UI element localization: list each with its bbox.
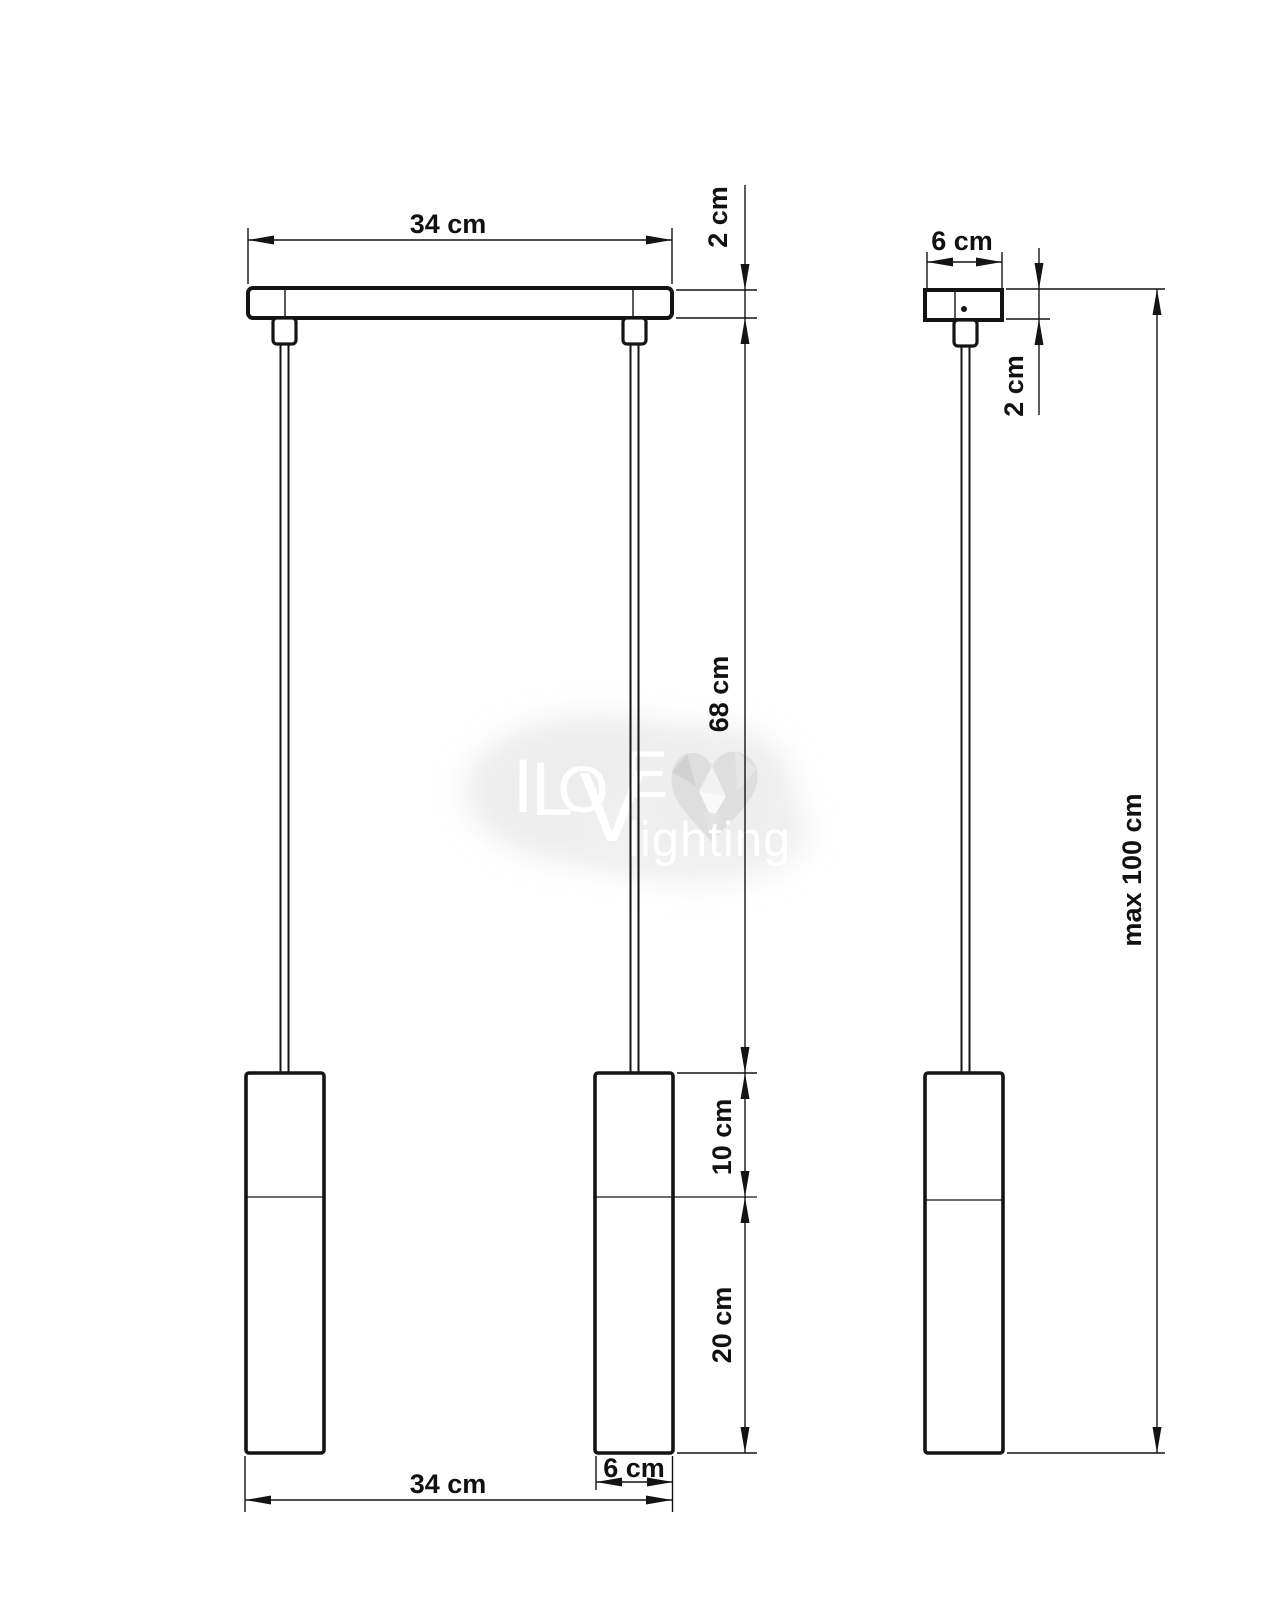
dim-label-front-shade-lower: 20 cm bbox=[707, 1287, 737, 1364]
dim-label-front-shade-upper: 10 cm bbox=[707, 1099, 737, 1176]
dim-label-side-max-drop: max 100 cm bbox=[1117, 793, 1147, 946]
arrow-up bbox=[1153, 289, 1162, 315]
arrow-left bbox=[245, 1496, 271, 1505]
dim-side-canopy-height: 2 cm bbox=[999, 248, 1165, 417]
dim-label-front-cable-length: 68 cm bbox=[704, 656, 734, 733]
front-ceiling-bar bbox=[248, 288, 672, 318]
side-view bbox=[925, 290, 1003, 1453]
front-cord-grip-right bbox=[623, 318, 646, 344]
dim-label-side-canopy-height: 2 cm bbox=[999, 355, 1029, 417]
arrow-down bbox=[1035, 263, 1044, 289]
dim-label-front-top-width: 34 cm bbox=[410, 209, 487, 239]
dim-front-shade-diameter: 6 cm bbox=[596, 1453, 673, 1490]
arrow-down bbox=[741, 1427, 750, 1453]
dim-label-side-canopy-width: 6 cm bbox=[931, 226, 993, 256]
technical-drawing-canvas: I L O V E lighting 34 cm bbox=[0, 0, 1280, 1600]
arrow-down bbox=[741, 1047, 750, 1073]
side-cord-grip bbox=[954, 320, 977, 346]
watermark-word-lighting: lighting bbox=[628, 813, 791, 867]
pendant-lamp-dimension-drawing: I L O V E lighting 34 cm bbox=[0, 0, 1280, 1600]
arrow-right bbox=[646, 236, 672, 245]
arrow-up bbox=[741, 1073, 750, 1099]
dim-side-canopy-width: 6 cm bbox=[927, 226, 1002, 288]
front-shade-left bbox=[246, 1073, 324, 1453]
arrow-right bbox=[976, 258, 1002, 267]
arrow-left bbox=[927, 258, 953, 267]
arrow-down bbox=[741, 1171, 750, 1197]
front-view bbox=[246, 288, 673, 1453]
front-shade-right bbox=[595, 1073, 673, 1453]
dim-front-top-width: 34 cm bbox=[248, 209, 672, 284]
side-canopy-screw-dot bbox=[961, 306, 967, 312]
dim-label-front-canopy-height: 2 cm bbox=[703, 186, 733, 248]
dim-label-front-shade-diameter: 6 cm bbox=[603, 1453, 665, 1483]
arrow-up bbox=[1035, 319, 1044, 345]
arrow-up bbox=[741, 1197, 750, 1223]
dim-side-max-drop: max 100 cm bbox=[1007, 289, 1165, 1453]
side-canopy bbox=[925, 290, 1002, 320]
front-cord-grip-left bbox=[273, 318, 296, 344]
arrow-down bbox=[1153, 1427, 1162, 1453]
arrow-down bbox=[741, 264, 750, 290]
arrow-right bbox=[646, 1496, 672, 1505]
arrow-left bbox=[248, 236, 274, 245]
dim-label-front-bottom-width: 34 cm bbox=[410, 1469, 487, 1499]
side-shade bbox=[925, 1073, 1003, 1453]
arrow-up bbox=[741, 318, 750, 344]
